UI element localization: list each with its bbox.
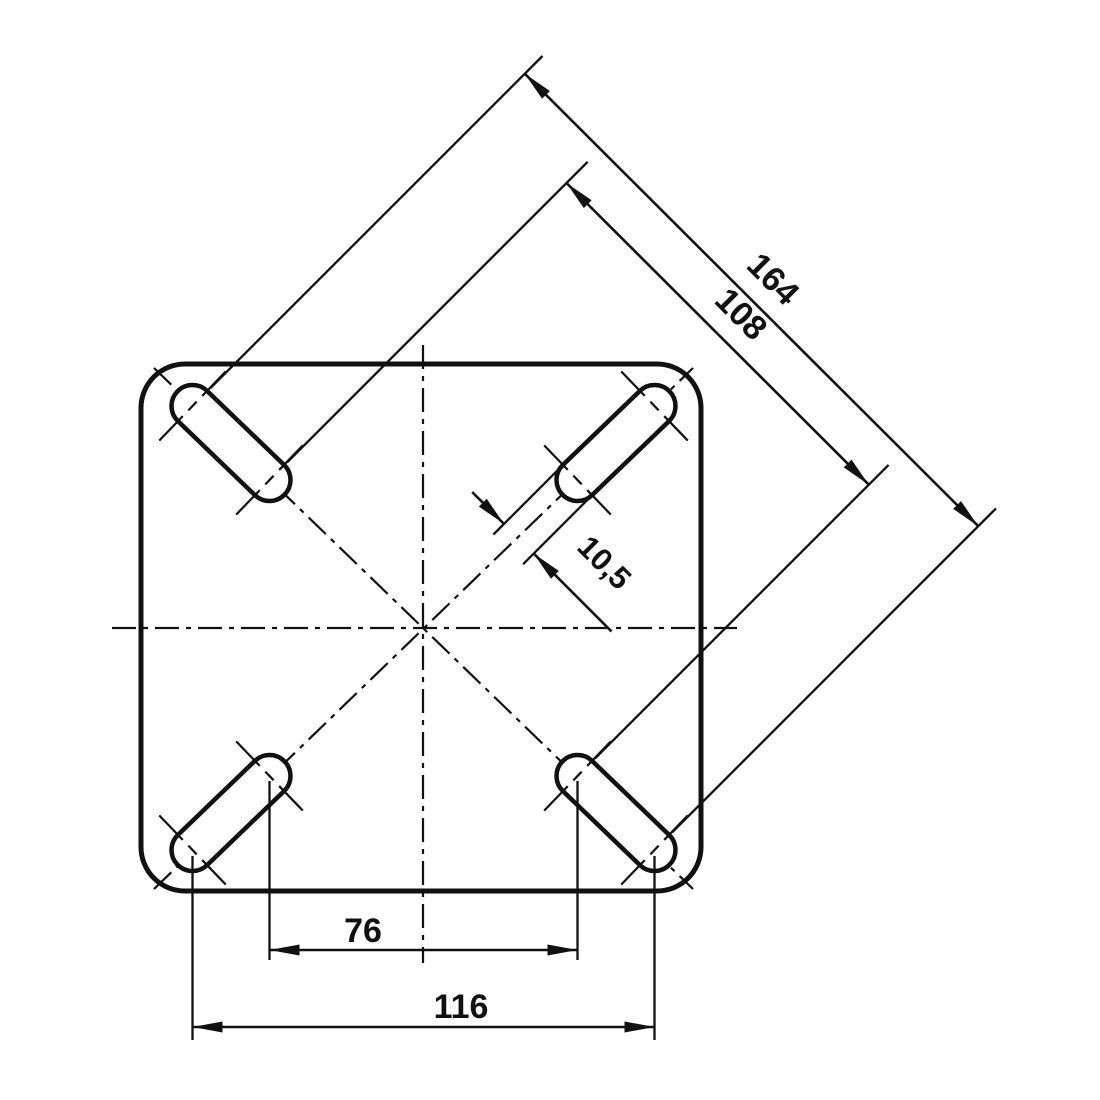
drawing-background	[0, 0, 1100, 1100]
mounting-plate-drawing: 164 108 10,5 76 116	[0, 0, 1100, 1100]
dim-label-76: 76	[344, 912, 382, 950]
technical-drawing-page: 164 108 10,5 76 116	[0, 0, 1100, 1100]
dim-label-116: 116	[434, 988, 489, 1026]
